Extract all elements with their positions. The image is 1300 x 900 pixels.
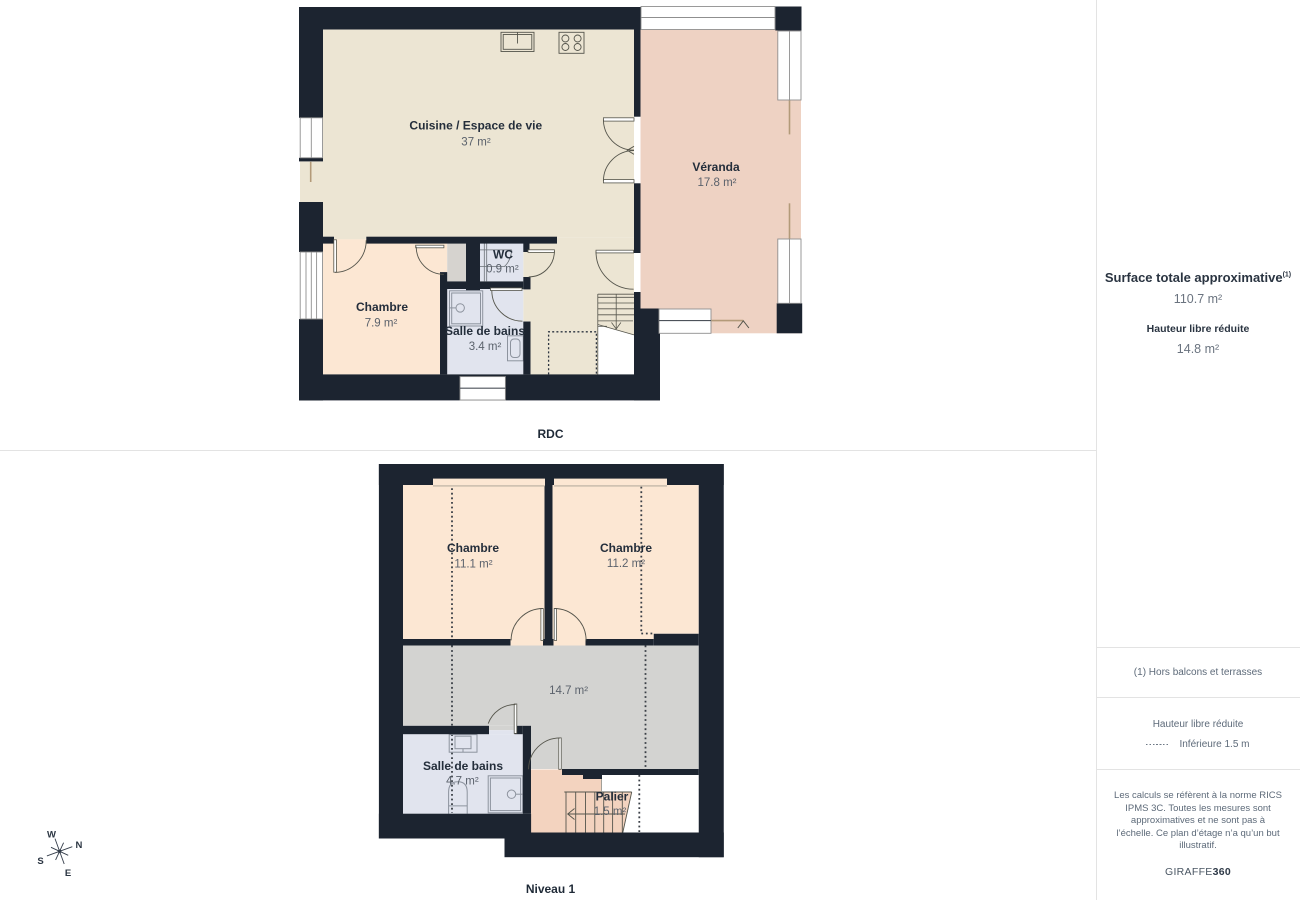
svg-text:Niveau 1: Niveau 1 [526, 882, 576, 896]
svg-text:4.7 m²: 4.7 m² [446, 776, 479, 788]
svg-text:Chambre: Chambre [447, 541, 499, 555]
svg-text:S: S [37, 856, 43, 867]
svg-text:14.7 m²: 14.7 m² [549, 685, 588, 697]
svg-text:Salle de bains: Salle de bains [445, 324, 525, 338]
svg-text:E: E [65, 868, 71, 879]
svg-text:N: N [75, 840, 82, 851]
svg-text:Salle de bains: Salle de bains [423, 759, 503, 773]
svg-text:Véranda: Véranda [692, 160, 740, 174]
svg-text:1.5 m²: 1.5 m² [594, 806, 627, 818]
svg-text:W: W [47, 829, 56, 840]
svg-text:Cuisine / Espace de vie: Cuisine / Espace de vie [409, 119, 542, 133]
svg-text:Palier: Palier [596, 790, 629, 804]
svg-text:RDC: RDC [538, 427, 564, 441]
svg-text:17.8 m²: 17.8 m² [698, 177, 737, 189]
svg-text:37 m²: 37 m² [461, 137, 491, 149]
svg-text:7.9 m²: 7.9 m² [365, 318, 398, 330]
svg-text:3.4 m²: 3.4 m² [469, 341, 502, 353]
svg-text:0.9 m²: 0.9 m² [486, 264, 519, 276]
svg-text:Chambre: Chambre [600, 541, 652, 555]
svg-text:11.2 m²: 11.2 m² [607, 558, 645, 570]
svg-text:11.1 m²: 11.1 m² [454, 558, 492, 570]
svg-text:WC: WC [493, 248, 513, 262]
svg-text:Chambre: Chambre [356, 300, 408, 314]
